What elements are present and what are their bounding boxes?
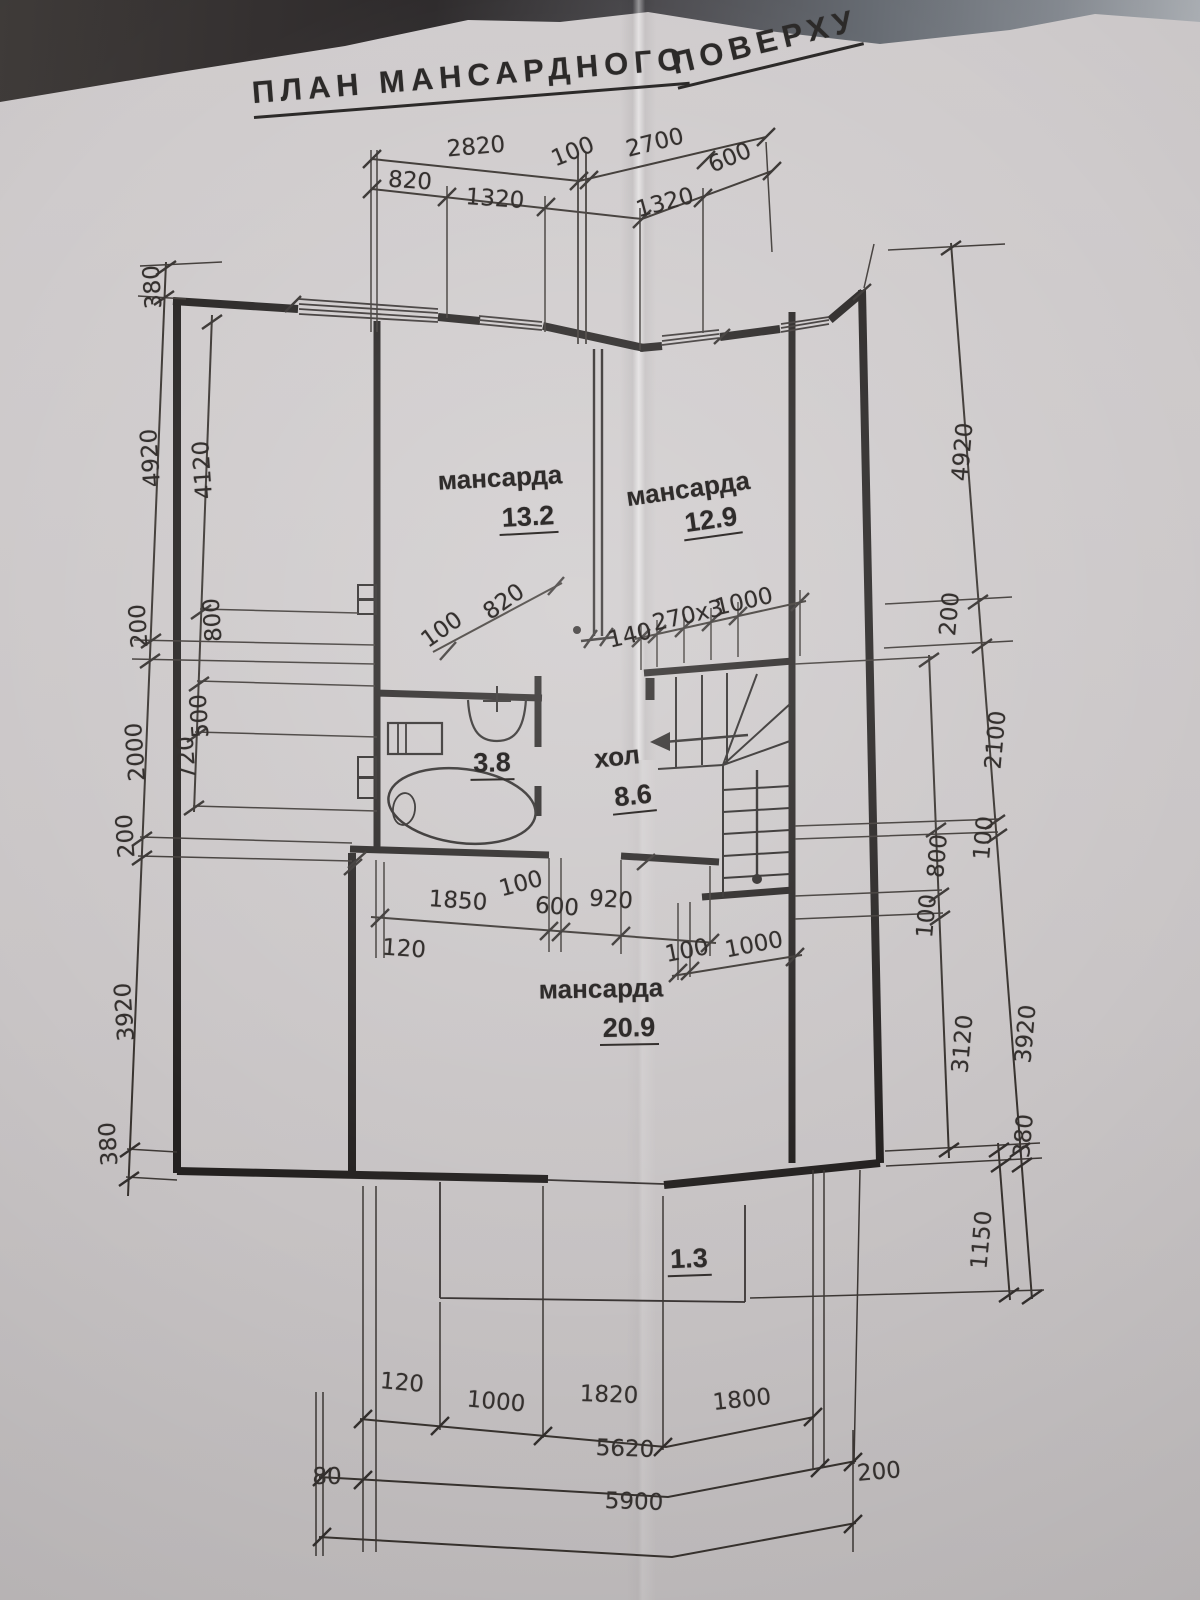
room-area-bathroom: 3.8	[470, 747, 514, 779]
area-value: 1.3	[667, 1243, 712, 1277]
area-value: 20.9	[599, 1012, 658, 1046]
dim-label: 120	[379, 1368, 425, 1398]
room-label-hall: хол	[593, 739, 642, 775]
dim-label: 200	[935, 591, 965, 637]
area-value: 8.6	[610, 778, 657, 815]
dim-label: 5620	[595, 1435, 654, 1463]
dim-label: 720	[173, 735, 202, 781]
room-label-mansarda-13: мансарда	[437, 459, 563, 496]
dim-label: 600	[534, 893, 580, 922]
photographed-floor-plan-page: ПЛАН МАНСАРДНОГО ПОВЕРХУ 2820 100 2700 6…	[0, 0, 1200, 1600]
dim-label: 2820	[446, 131, 507, 162]
dim-label: 380	[1009, 1113, 1039, 1159]
dim-label: 380	[95, 1121, 124, 1167]
room-label-mansarda-20: мансарда	[538, 972, 663, 1005]
room-area-mansarda-20: 20.9	[599, 1012, 658, 1044]
room-area-hall: 8.6	[610, 778, 657, 813]
dim-label: 2700	[623, 123, 686, 162]
dim-label: 500	[186, 693, 215, 739]
dim-label: 380	[139, 264, 168, 310]
dim-label: 100	[417, 607, 468, 653]
room-area-mansarda-13: 13.2	[498, 500, 558, 534]
dim-label: 120	[381, 935, 427, 964]
dim-label: 2100	[980, 710, 1011, 771]
dim-label: 200	[856, 1457, 902, 1487]
dim-label: 1820	[579, 1381, 638, 1409]
dim-label: 140	[606, 618, 655, 653]
dim-label: 200	[125, 603, 154, 649]
dim-label: 100	[663, 934, 711, 968]
dim-label: 3920	[110, 982, 140, 1042]
dim-label: 600	[705, 138, 755, 179]
dim-label: 100	[912, 893, 942, 939]
dim-label: 820	[387, 167, 433, 196]
dim-label: 5900	[604, 1488, 663, 1516]
dim-label: 2000	[121, 722, 151, 782]
area-value: 13.2	[498, 500, 558, 536]
dim-label: 100	[548, 132, 598, 173]
area-value: 12.9	[680, 501, 743, 542]
dim-label: 1850	[428, 886, 488, 916]
dim-label: 100	[969, 815, 999, 861]
dim-label: 1320	[633, 183, 696, 223]
drawing-title-right: ПОВЕРХУ	[668, 2, 864, 89]
dim-label: 1320	[465, 184, 525, 214]
dim-label: 80	[312, 1464, 341, 1490]
room-area-mansarda-12: 12.9	[680, 501, 742, 540]
dim-label: 1000	[466, 1386, 527, 1417]
dim-label: 820	[479, 579, 530, 625]
dim-label: 920	[588, 886, 634, 915]
area-value: 3.8	[470, 747, 514, 781]
dim-label: 1000	[723, 927, 785, 964]
dim-label: 4920	[947, 422, 978, 483]
dim-label: 1000	[713, 583, 776, 622]
dim-label: 4120	[188, 440, 218, 500]
dim-label: 1150	[966, 1210, 997, 1271]
dim-label: 800	[199, 597, 228, 643]
label-layer: ПЛАН МАНСАРДНОГО ПОВЕРХУ 2820 100 2700 6…	[0, 0, 1200, 1600]
dim-label: 3920	[1010, 1004, 1041, 1065]
dim-label: 4920	[136, 428, 166, 488]
dim-label: 3120	[947, 1014, 978, 1075]
dim-label: 800	[923, 833, 953, 879]
dim-label: 200	[112, 813, 141, 859]
drawing-title-left: ПЛАН МАНСАРДНОГО	[251, 41, 690, 119]
dim-label: 1800	[712, 1384, 773, 1416]
room-area-balcony: 1.3	[667, 1243, 712, 1276]
